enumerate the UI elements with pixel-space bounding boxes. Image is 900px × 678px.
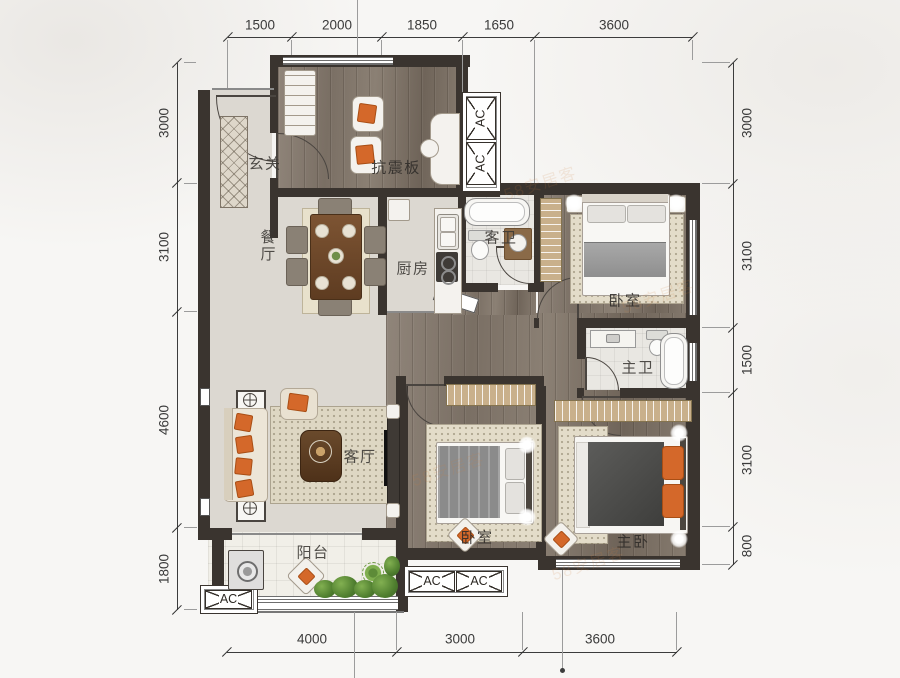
lamp-glow bbox=[670, 424, 688, 442]
room-label-master-bath: 主卫 bbox=[621, 357, 654, 378]
wall bbox=[378, 197, 387, 315]
wall bbox=[620, 388, 700, 398]
tv-console bbox=[387, 416, 400, 506]
dim-top-2: 2000 bbox=[322, 18, 352, 33]
dining-chair bbox=[364, 258, 386, 286]
dining-chair bbox=[364, 226, 386, 254]
wardrobe bbox=[446, 384, 536, 406]
lamp-glow bbox=[518, 436, 536, 454]
witness-line bbox=[692, 40, 693, 60]
dining-chair bbox=[318, 298, 352, 316]
room-label-balcony: 阳台 bbox=[296, 542, 329, 563]
balcony-threshold bbox=[232, 533, 362, 535]
entry-threshold bbox=[212, 88, 274, 90]
dim-top-1: 1500 bbox=[245, 18, 275, 33]
speaker bbox=[386, 404, 400, 419]
sofa-cushion bbox=[234, 413, 254, 433]
wall-pillar bbox=[200, 498, 210, 516]
dim-bottom-2: 3000 bbox=[445, 632, 475, 647]
wall bbox=[198, 90, 210, 535]
sofa-cushion bbox=[235, 435, 254, 454]
plant bbox=[372, 574, 398, 598]
blanket bbox=[584, 242, 666, 277]
plate bbox=[315, 276, 329, 290]
wardrobe bbox=[540, 198, 562, 282]
entry-door-leaf bbox=[216, 95, 276, 97]
bookshelf bbox=[284, 70, 316, 136]
witness-line bbox=[522, 612, 523, 650]
wall-pillar bbox=[200, 388, 210, 406]
master-bedroom-door-leaf bbox=[582, 396, 620, 398]
dim-top-3: 1850 bbox=[407, 18, 437, 33]
desk-chair bbox=[420, 139, 439, 158]
witness-line bbox=[702, 392, 730, 393]
dimension-line-bottom bbox=[227, 652, 677, 653]
ac-unit: AC bbox=[409, 571, 455, 592]
room-label-bedroom-bottom: 卧室 bbox=[460, 527, 493, 548]
sofa-back bbox=[224, 408, 233, 500]
room-label-entry: 玄关 bbox=[248, 153, 281, 174]
wall bbox=[396, 548, 544, 560]
wall bbox=[577, 328, 586, 359]
sink-basin bbox=[440, 217, 456, 232]
dim-right-4: 3100 bbox=[740, 445, 755, 475]
witness-line bbox=[702, 564, 730, 565]
dim-bottom-3: 3600 bbox=[585, 632, 615, 647]
shoe-cabinet bbox=[220, 116, 248, 208]
faucet bbox=[606, 334, 620, 343]
pillow bbox=[662, 446, 684, 480]
lamp-glow bbox=[670, 530, 688, 548]
witness-line bbox=[184, 62, 196, 63]
burner bbox=[441, 256, 456, 271]
room-label-kitchen: 厨房 bbox=[396, 258, 429, 279]
master-bath-door-leaf bbox=[585, 357, 587, 390]
witness-line bbox=[184, 609, 197, 610]
pillow bbox=[662, 484, 684, 518]
window bbox=[283, 57, 393, 65]
fridge bbox=[388, 199, 410, 221]
floor-plan-canvas: { "plan": { "dims": { "top": ["1500", "2… bbox=[0, 0, 900, 678]
witness-line bbox=[462, 40, 463, 92]
ac-label: AC bbox=[475, 109, 488, 128]
dim-right-1: 3000 bbox=[740, 108, 755, 138]
wall bbox=[362, 528, 402, 540]
witness-line bbox=[702, 526, 730, 527]
room-label-study: 抗震板 bbox=[371, 157, 421, 178]
plate bbox=[315, 224, 329, 238]
witness-line bbox=[396, 612, 397, 650]
axis-line bbox=[357, 0, 358, 55]
witness-line bbox=[534, 40, 535, 183]
sofa-cushion bbox=[234, 457, 253, 476]
burner bbox=[441, 270, 456, 285]
dim-right-5: 800 bbox=[740, 535, 755, 558]
chair-cushion bbox=[357, 103, 377, 124]
ac-label: AC bbox=[219, 593, 238, 606]
armchair-cushion bbox=[287, 393, 309, 413]
witness-line bbox=[291, 40, 292, 55]
potted-plant bbox=[243, 393, 257, 407]
wall bbox=[534, 318, 539, 328]
headboard bbox=[582, 194, 668, 203]
ac-unit: AC bbox=[466, 97, 496, 140]
tv bbox=[384, 430, 387, 486]
witness-line bbox=[702, 327, 730, 328]
wall bbox=[198, 528, 232, 540]
sofa-cushion bbox=[235, 479, 255, 499]
ac-unit: AC bbox=[205, 590, 252, 609]
ac-unit: AC bbox=[456, 571, 502, 592]
witness-line bbox=[381, 40, 382, 55]
bedroom-bottom-door-leaf bbox=[406, 384, 444, 386]
axis-line bbox=[354, 612, 355, 678]
dim-top-5: 3600 bbox=[599, 18, 629, 33]
dim-top-4: 1650 bbox=[484, 18, 514, 33]
plate bbox=[342, 276, 356, 290]
dining-chair bbox=[286, 226, 308, 254]
witness-line bbox=[184, 311, 197, 312]
witness-line bbox=[676, 612, 677, 650]
ac-label: AC bbox=[475, 154, 488, 173]
wall bbox=[396, 376, 406, 386]
wall bbox=[212, 532, 224, 590]
axis-dot bbox=[560, 668, 565, 673]
axis-line bbox=[562, 570, 563, 670]
ac-label: AC bbox=[422, 575, 441, 588]
room-label-living: 客厅 bbox=[343, 446, 376, 467]
bathtub-basin bbox=[664, 337, 684, 385]
ac-label: AC bbox=[469, 575, 488, 588]
wardrobe bbox=[554, 400, 692, 422]
dining-chair bbox=[286, 258, 308, 286]
dim-bottom-1: 4000 bbox=[297, 632, 327, 647]
washer-drum bbox=[237, 561, 258, 582]
witness-line bbox=[184, 183, 197, 184]
room-label-dining: 餐厅 bbox=[260, 229, 277, 263]
plate bbox=[342, 224, 356, 238]
window bbox=[689, 220, 697, 315]
dimension-line-right bbox=[733, 63, 734, 565]
window bbox=[689, 343, 697, 381]
room-label-guest-bath: 客卫 bbox=[484, 227, 517, 248]
ac-unit: AC bbox=[466, 142, 496, 185]
witness-line bbox=[184, 527, 197, 528]
blanket bbox=[588, 442, 664, 526]
witness-line bbox=[227, 40, 228, 88]
plant bbox=[384, 556, 400, 576]
tray bbox=[309, 440, 332, 463]
dim-left-3: 4600 bbox=[157, 405, 172, 435]
pillow bbox=[627, 205, 666, 223]
balcony-window bbox=[256, 596, 398, 610]
speaker bbox=[386, 503, 400, 518]
pillow bbox=[587, 205, 626, 223]
witness-line bbox=[702, 183, 730, 184]
dim-left-2: 3100 bbox=[157, 232, 172, 262]
dim-right-3: 1500 bbox=[740, 345, 755, 375]
witness-line bbox=[702, 62, 730, 63]
wall bbox=[577, 318, 700, 328]
dim-right-2: 3100 bbox=[740, 241, 755, 271]
lamp-glow bbox=[565, 194, 583, 212]
bathtub-basin bbox=[469, 202, 525, 222]
centerpiece bbox=[328, 248, 344, 264]
sink-basin bbox=[440, 232, 456, 247]
potted-plant bbox=[243, 501, 257, 515]
dim-left-1: 3000 bbox=[157, 108, 172, 138]
lamp-glow bbox=[518, 508, 536, 526]
dim-left-4: 1800 bbox=[157, 554, 172, 584]
